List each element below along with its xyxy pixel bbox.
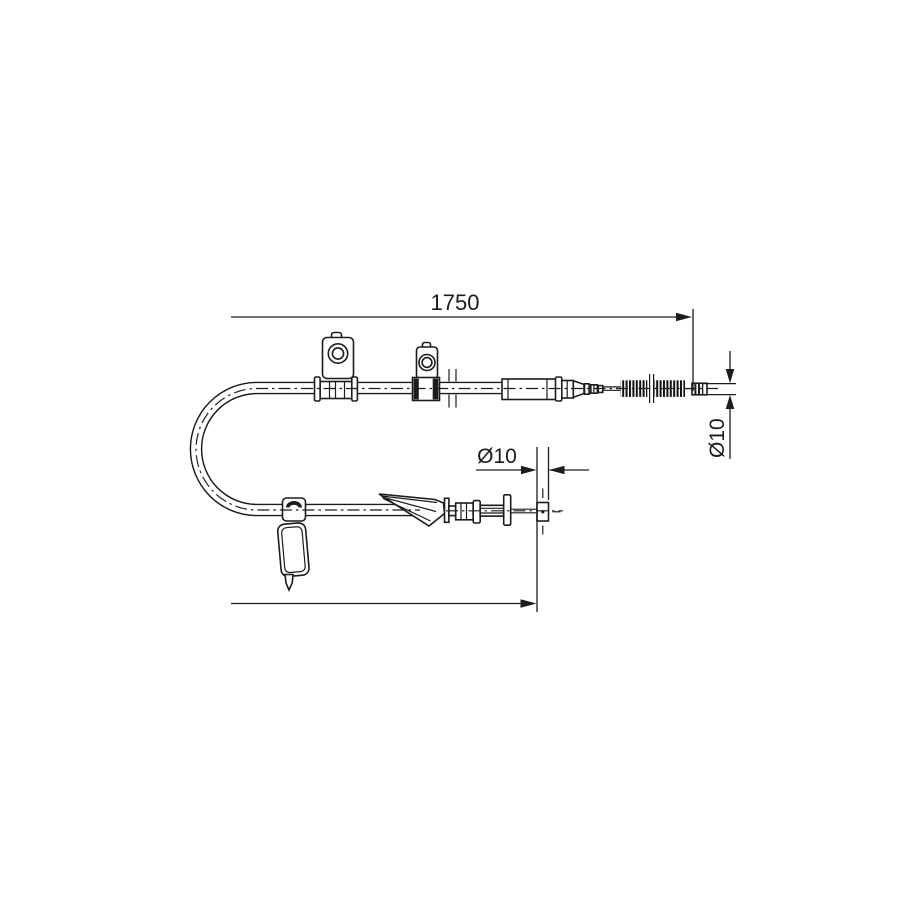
arrowhead-up: [726, 395, 735, 409]
dimension-lower-length: [231, 599, 537, 608]
technical-drawing-canvas: 1750 Ø10 Ø10: [0, 0, 915, 915]
dimension-label-1750: 1750: [431, 290, 480, 315]
dimension-label-dia10-middle: Ø10: [477, 445, 517, 468]
dimension-rod-end-diameter: Ø10: [476, 445, 589, 612]
mounting-bracket-2: [417, 343, 438, 380]
arrowhead-right: [676, 313, 692, 322]
centerlines: [196, 389, 718, 511]
rubber-boot: [277, 522, 309, 590]
arrowhead-down: [726, 369, 735, 383]
dimension-label-dia10-right: Ø10: [706, 418, 729, 458]
rod-end-fittings: [445, 495, 538, 525]
arrowhead-left: [549, 466, 565, 475]
boot-tip: [285, 575, 293, 591]
mounting-bracket-1: [323, 333, 354, 379]
dimension-overall-length: 1750: [231, 290, 693, 391]
cable-end-fitting: [562, 381, 621, 399]
arrowhead-right: [521, 599, 537, 608]
arrowhead-right: [521, 466, 537, 475]
dimension-cable-end-diameter: Ø10: [703, 351, 736, 459]
